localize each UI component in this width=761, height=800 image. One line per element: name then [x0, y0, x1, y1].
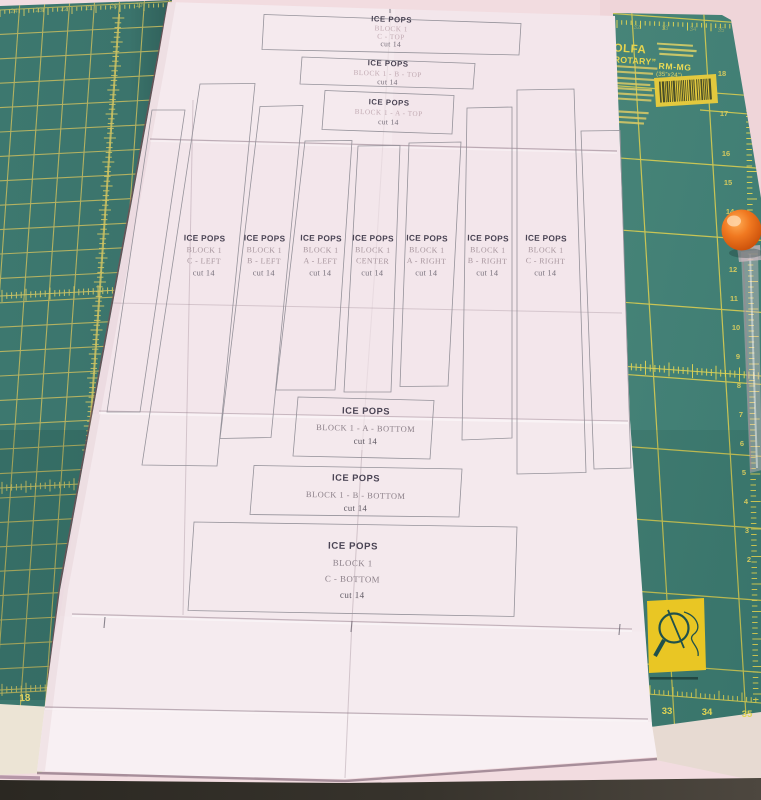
svg-text:BLOCK 1: BLOCK 1: [470, 245, 506, 255]
svg-text:cut 14: cut 14: [476, 268, 498, 277]
svg-text:35: 35: [742, 709, 753, 720]
svg-text:BLOCK 1: BLOCK 1: [186, 245, 222, 255]
svg-text:33: 33: [662, 26, 669, 32]
svg-text:7: 7: [739, 410, 743, 419]
svg-text:8: 8: [737, 381, 741, 390]
svg-text:12: 12: [729, 265, 737, 274]
svg-text:cut 14: cut 14: [380, 39, 401, 49]
svg-text:cut 14: cut 14: [344, 503, 368, 513]
svg-text:ICE POPS: ICE POPS: [369, 97, 410, 107]
svg-text:ICE POPS: ICE POPS: [352, 233, 394, 244]
svg-text:cut 14: cut 14: [361, 268, 383, 277]
svg-text:BLOCK 1: BLOCK 1: [355, 245, 391, 255]
svg-text:A - RIGHT: A - RIGHT: [407, 256, 447, 266]
svg-text:C - LEFT: C - LEFT: [187, 256, 221, 266]
svg-text:35: 35: [718, 28, 725, 34]
svg-text:cut 14: cut 14: [340, 590, 365, 600]
svg-text:10: 10: [732, 323, 740, 332]
svg-text:ICE POPS: ICE POPS: [342, 405, 390, 416]
svg-text:23: 23: [35, 7, 43, 14]
svg-text:18: 18: [718, 69, 726, 78]
svg-text:ICE POPS: ICE POPS: [300, 233, 342, 244]
svg-text:20: 20: [110, 3, 118, 10]
svg-text:2: 2: [747, 555, 751, 564]
svg-text:cut 14: cut 14: [415, 268, 437, 277]
svg-text:3: 3: [745, 526, 749, 535]
svg-text:11: 11: [730, 294, 738, 303]
svg-text:33: 33: [662, 706, 673, 717]
svg-text:C - BOTTOM: C - BOTTOM: [325, 574, 380, 585]
svg-text:cut 14: cut 14: [253, 268, 275, 277]
svg-text:BLOCK 1: BLOCK 1: [409, 245, 445, 255]
svg-text:BLOCK 1: BLOCK 1: [246, 245, 282, 255]
svg-text:ICE POPS: ICE POPS: [371, 14, 412, 24]
svg-text:17: 17: [720, 109, 728, 118]
svg-text:ICE POPS: ICE POPS: [328, 541, 378, 553]
svg-text:34: 34: [702, 707, 713, 718]
svg-text:ICE POPS: ICE POPS: [525, 233, 567, 244]
svg-text:ICE POPS: ICE POPS: [184, 233, 226, 244]
svg-text:A - LEFT: A - LEFT: [304, 256, 338, 266]
svg-text:9: 9: [736, 352, 740, 361]
svg-text:cut 14: cut 14: [193, 268, 215, 277]
svg-text:BLOCK 1: BLOCK 1: [303, 245, 339, 255]
svg-text:ICE POPS: ICE POPS: [406, 233, 448, 244]
svg-text:cut 14: cut 14: [534, 268, 556, 277]
svg-text:18: 18: [19, 693, 31, 705]
svg-text:ICE POPS: ICE POPS: [332, 472, 380, 483]
svg-text:BLOCK 1: BLOCK 1: [528, 245, 564, 255]
svg-text:ICE POPS: ICE POPS: [467, 233, 509, 244]
svg-text:34: 34: [690, 27, 697, 33]
svg-text:BLOCK 1: BLOCK 1: [333, 558, 373, 569]
svg-text:cut 14: cut 14: [377, 77, 398, 87]
svg-text:ICE POPS: ICE POPS: [368, 58, 409, 68]
svg-text:24: 24: [10, 8, 18, 15]
svg-text:B - RIGHT: B - RIGHT: [468, 256, 508, 266]
svg-text:5: 5: [742, 468, 746, 477]
svg-text:RM-MG: RM-MG: [658, 61, 692, 73]
svg-text:cut 14: cut 14: [309, 268, 331, 277]
svg-text:cut 14: cut 14: [354, 436, 378, 446]
svg-text:21: 21: [85, 5, 93, 12]
svg-text:cut 14: cut 14: [378, 117, 399, 127]
svg-text:C - RIGHT: C - RIGHT: [526, 256, 566, 266]
svg-text:16: 16: [722, 149, 730, 158]
svg-text:ICE POPS: ICE POPS: [244, 233, 286, 244]
svg-text:32: 32: [634, 25, 641, 31]
svg-text:19: 19: [135, 2, 143, 9]
svg-text:B - LEFT: B - LEFT: [247, 256, 281, 266]
svg-text:6: 6: [740, 439, 744, 448]
svg-text:15: 15: [724, 178, 732, 187]
svg-text:22: 22: [60, 6, 68, 13]
svg-text:CENTER: CENTER: [356, 256, 390, 266]
